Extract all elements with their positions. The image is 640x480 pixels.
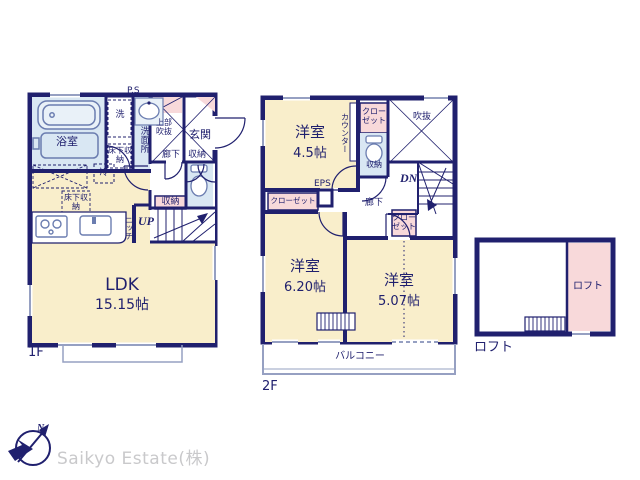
f2-balcony <box>263 344 455 374</box>
f2-toilet-icon <box>366 136 382 162</box>
compass-icon <box>8 424 50 465</box>
f2-room1-area <box>265 100 358 188</box>
loft-ladder-icon <box>525 317 565 331</box>
loft-pink-area <box>568 243 610 331</box>
floor1-plan <box>30 95 245 362</box>
f1-stove-icon <box>36 216 67 237</box>
f2-closet-top-box <box>360 103 388 133</box>
f1-vanity-sink-icon <box>135 98 163 125</box>
floor2-plan <box>263 98 455 374</box>
f1-porch <box>63 345 182 362</box>
f2-closet-left-box <box>268 193 318 210</box>
f2-ladder-icon <box>317 313 355 330</box>
f1-kitchen-sink-icon <box>80 216 111 235</box>
f2-room3-area <box>345 240 453 342</box>
f2-eps-shaft <box>318 190 332 206</box>
loft-plan <box>477 240 613 334</box>
floor-plan-graphics <box>0 0 640 480</box>
floor-plan-canvas: P.S 浴室 洗 床下収納 洗面所 上部吹抜 玄関 廊下 収納 冷 床下収納 ニ… <box>0 0 640 480</box>
